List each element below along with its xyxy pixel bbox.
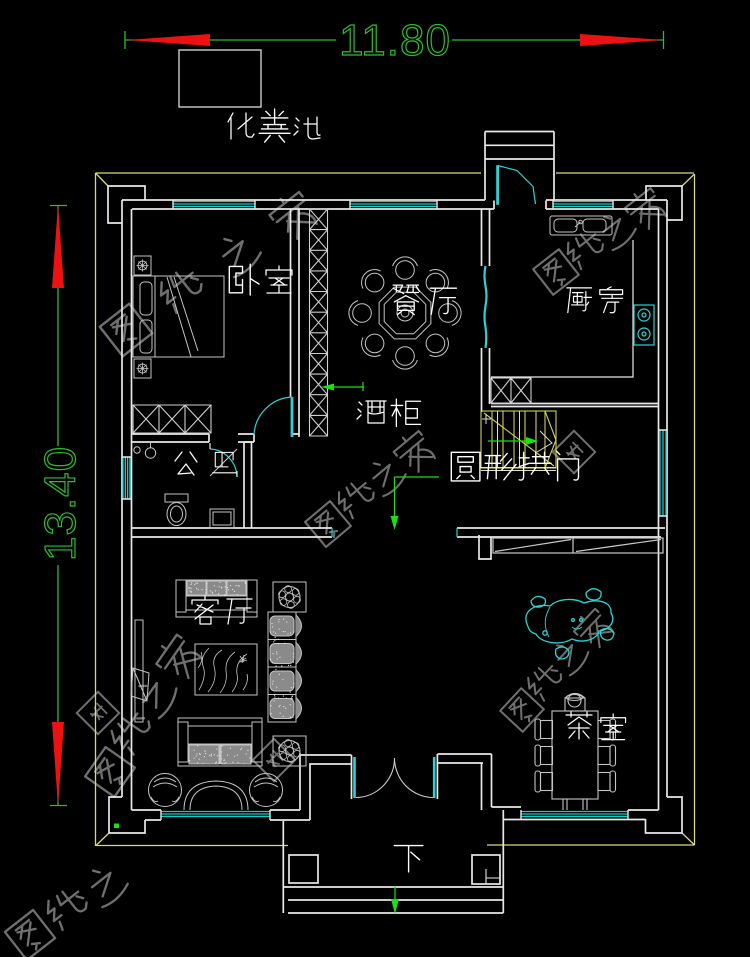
svg-text:13.40: 13.40 [36, 446, 85, 561]
svg-text:11.80: 11.80 [339, 16, 451, 65]
